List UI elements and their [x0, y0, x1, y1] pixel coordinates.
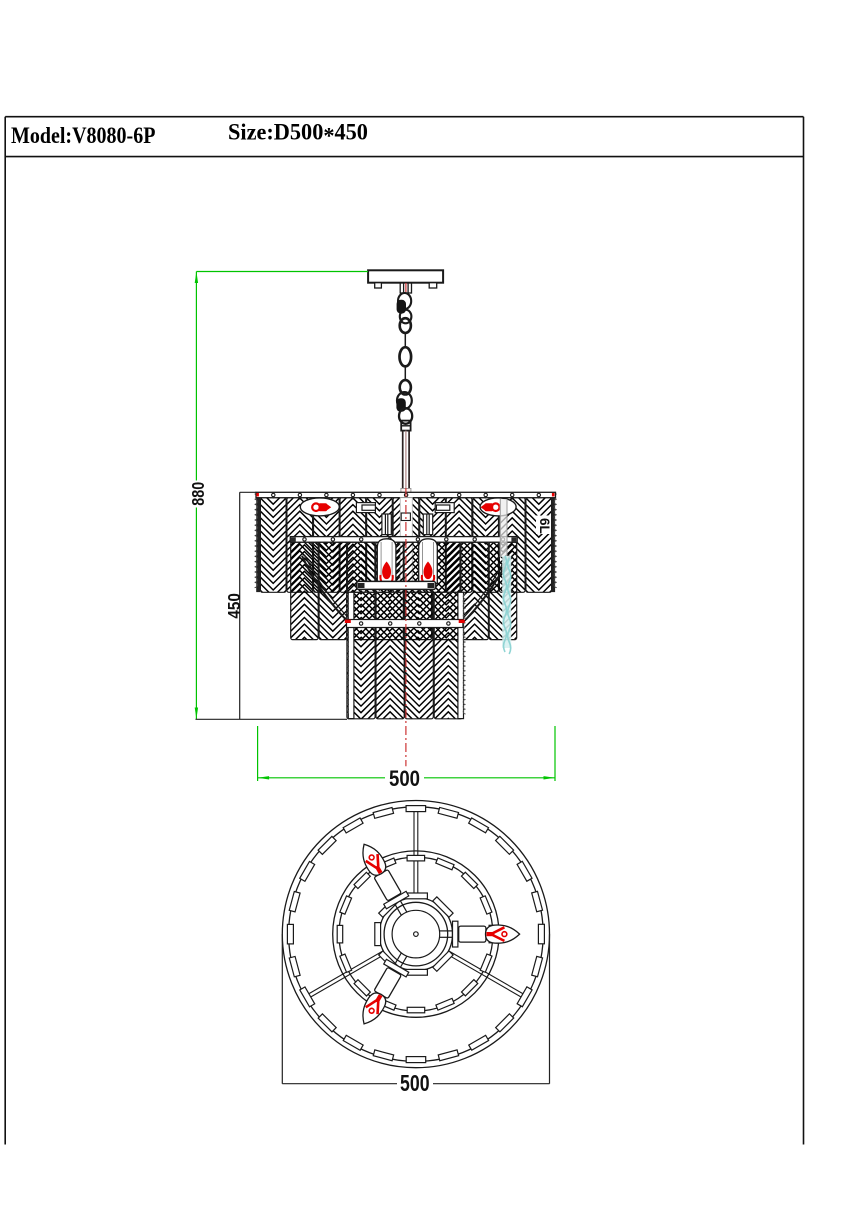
svg-text:500: 500	[389, 766, 420, 791]
svg-text:450: 450	[224, 593, 244, 619]
svg-text:Model:V8080-6P: Model:V8080-6P	[11, 123, 155, 149]
svg-text:6L: 6L	[537, 518, 552, 534]
svg-text:880: 880	[188, 482, 208, 506]
svg-text:Size:D500*450: Size:D500*450	[228, 119, 368, 148]
svg-text:500: 500	[400, 1070, 430, 1096]
